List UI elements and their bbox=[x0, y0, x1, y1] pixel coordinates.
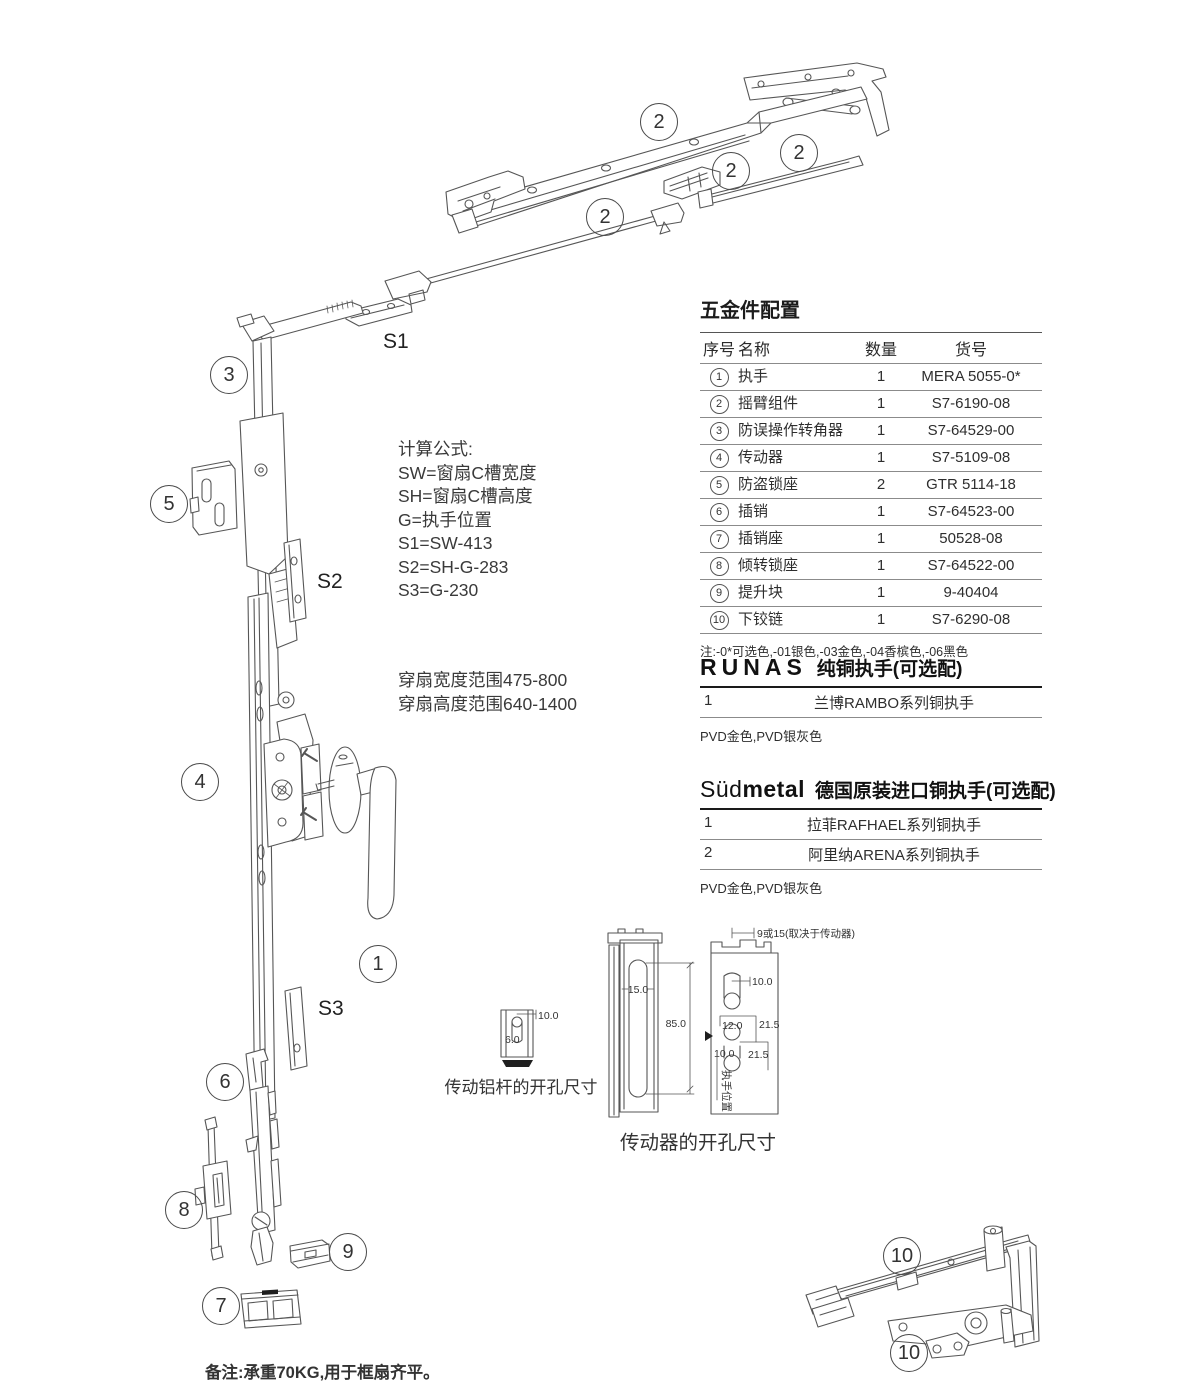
runas-title: 纯铜执手(可选配) bbox=[817, 654, 963, 681]
s3-plate bbox=[285, 987, 307, 1070]
part-callout: 8 bbox=[165, 1191, 203, 1229]
rod-dim-inner: 6.0 bbox=[505, 1034, 520, 1046]
part-code: S7-64529-00 bbox=[900, 418, 1042, 445]
part-callout: 2 bbox=[712, 152, 750, 190]
latch-keeper bbox=[241, 1290, 301, 1329]
part-code: S7-64523-00 bbox=[900, 499, 1042, 526]
part-code: MERA 5055-0* bbox=[900, 364, 1042, 391]
part-callout: 6 bbox=[206, 1063, 244, 1101]
rod-hole-caption: 传动铝杆的开孔尺寸 bbox=[440, 1073, 602, 1098]
option-row: 2 阿里纳ARENA系列铜执手 bbox=[700, 840, 1042, 870]
part-qty: 1 bbox=[862, 364, 900, 391]
runas-logo: RUNAS bbox=[700, 654, 807, 681]
hardware-config-section: 五金件配置 序号 名称 数量 货号 1 执手 1 MERA 5055 bbox=[700, 294, 1042, 660]
opening-dim-pitch2: 21.5 bbox=[748, 1049, 769, 1061]
part-callout: 2 bbox=[640, 103, 678, 141]
hardware-table: 序号 名称 数量 货号 1 执手 1 MERA 5055-0* bbox=[700, 332, 1042, 634]
table-row: 9 提升块 1 9-40404 bbox=[700, 580, 1042, 607]
part-code: 9-40404 bbox=[900, 580, 1042, 607]
runas-finish-note: PVD金色,PVD银灰色 bbox=[700, 726, 1042, 745]
row-index-badge: 10 bbox=[710, 611, 729, 630]
formula-line: SH=窗扇C槽高度 bbox=[398, 485, 537, 509]
table-row: 4 传动器 1 S7-5109-08 bbox=[700, 445, 1042, 472]
opening-dim-hole: 10.0 bbox=[752, 976, 773, 988]
opening-side-note: 执手位置 bbox=[720, 1070, 733, 1112]
col-header-code: 货号 bbox=[900, 333, 1042, 364]
part-callout: 3 bbox=[210, 356, 248, 394]
formula-line: G=执手位置 bbox=[398, 509, 537, 533]
part-qty: 1 bbox=[862, 418, 900, 445]
part-code: S7-64522-00 bbox=[900, 553, 1042, 580]
table-row: 2 摇臂组件 1 S7-6190-08 bbox=[700, 391, 1042, 418]
part-name: 传动器 bbox=[738, 445, 862, 472]
part-qty: 1 bbox=[862, 499, 900, 526]
part-callout: 9 bbox=[329, 1233, 367, 1271]
part-code: 50528-08 bbox=[900, 526, 1042, 553]
part-callout: 7 bbox=[202, 1287, 240, 1325]
part-callout: 5 bbox=[150, 485, 188, 523]
option-index: 1 bbox=[700, 692, 746, 713]
rod-hole-diagram: 10.0 6.0 bbox=[501, 1010, 559, 1067]
part-name: 插销座 bbox=[738, 526, 862, 553]
part-callout: 1 bbox=[359, 945, 397, 983]
part-qty: 1 bbox=[862, 607, 900, 634]
part-callout: 4 bbox=[181, 763, 219, 801]
bottom-hinge bbox=[806, 1226, 1039, 1358]
part-name: 倾转锁座 bbox=[738, 553, 862, 580]
part-name: 插销 bbox=[738, 499, 862, 526]
hardware-table-title: 五金件配置 bbox=[700, 294, 1042, 323]
table-row: 7 插销座 1 50528-08 bbox=[700, 526, 1042, 553]
formula-line: S1=SW-413 bbox=[398, 532, 537, 556]
footer-note: 备注:承重70KG,用于框扇齐平。 bbox=[205, 1359, 440, 1383]
drive-gear bbox=[248, 593, 323, 1122]
part-code: GTR 5114-18 bbox=[900, 472, 1042, 499]
tilt-lock-keeper bbox=[195, 1117, 231, 1260]
driver-hole-caption: 传动器的开孔尺寸 bbox=[600, 1126, 796, 1155]
part-callout: 2 bbox=[586, 198, 624, 236]
s-marker: S3 bbox=[318, 997, 344, 1021]
table-row: 5 防盗锁座 2 GTR 5114-18 bbox=[700, 472, 1042, 499]
part-name: 执手 bbox=[738, 364, 862, 391]
driver-dim-slot: 15.0 bbox=[628, 984, 649, 996]
part-callout: 10 bbox=[883, 1237, 921, 1275]
part-name: 防误操作转角器 bbox=[738, 418, 862, 445]
option-row: 1 兰博RAMBO系列铜执手 bbox=[700, 688, 1042, 718]
sudmetal-finish-note: PVD金色,PVD银灰色 bbox=[700, 878, 1042, 897]
col-header-index: 序号 bbox=[700, 333, 738, 364]
part-qty: 1 bbox=[862, 391, 900, 418]
row-index-badge: 9 bbox=[710, 584, 729, 603]
sash-range-block: 穿扇宽度范围475-800穿扇高度范围640-1400 bbox=[398, 668, 577, 716]
row-index-badge: 4 bbox=[710, 449, 729, 468]
formula-line: SW=窗扇C槽宽度 bbox=[398, 462, 537, 486]
part-name: 提升块 bbox=[738, 580, 862, 607]
option-name: 阿里纳ARENA系列铜执手 bbox=[746, 844, 1042, 865]
table-row: 6 插销 1 S7-64523-00 bbox=[700, 499, 1042, 526]
table-row: 10 下铰链 1 S7-6290-08 bbox=[700, 607, 1042, 634]
lift-block bbox=[290, 1240, 330, 1268]
opening-dim-offset: 12.0 bbox=[722, 1020, 743, 1032]
row-index-badge: 5 bbox=[710, 476, 729, 495]
table-header-row: 序号 名称 数量 货号 bbox=[700, 333, 1042, 364]
part-qty: 2 bbox=[862, 472, 900, 499]
col-header-name: 名称 bbox=[738, 333, 862, 364]
page: 10.0 6.0 15.0 85.0 9或15(取决于传动器) bbox=[0, 0, 1200, 1400]
col-header-qty: 数量 bbox=[862, 333, 900, 364]
sudmetal-title: 德国原装进口铜执手(可选配) bbox=[815, 776, 1056, 803]
runas-option-section: RUNAS 纯铜执手(可选配) 1 兰博RAMBO系列铜执手 PVD金色,PVD… bbox=[700, 654, 1042, 745]
driver-profile-diagram: 15.0 85.0 bbox=[608, 929, 694, 1117]
sash-range-line: 穿扇高度范围640-1400 bbox=[398, 692, 577, 716]
s-marker: S1 bbox=[383, 330, 409, 354]
option-index: 1 bbox=[700, 814, 746, 835]
option-name: 兰博RAMBO系列铜执手 bbox=[746, 692, 1042, 713]
driver-dim-height: 85.0 bbox=[666, 1018, 687, 1030]
formula-line: S3=G-230 bbox=[398, 579, 537, 603]
rod-dim-width: 10.0 bbox=[538, 1010, 559, 1022]
formula-block: 计算公式: SW=窗扇C槽宽度SH=窗扇C槽高度G=执手位置S1=SW-413S… bbox=[398, 438, 537, 603]
option-name: 拉菲RAFHAEL系列铜执手 bbox=[746, 814, 1042, 835]
table-row: 1 执手 1 MERA 5055-0* bbox=[700, 364, 1042, 391]
part-code: S7-5109-08 bbox=[900, 445, 1042, 472]
part-qty: 1 bbox=[862, 553, 900, 580]
part-qty: 1 bbox=[862, 526, 900, 553]
s-marker: S2 bbox=[317, 570, 343, 594]
formula-title: 计算公式: bbox=[398, 438, 537, 462]
window-handle bbox=[316, 747, 396, 919]
part-callout: 10 bbox=[890, 1334, 928, 1372]
opening-diagram: 9或15(取决于传动器) 10.0 12.0 21.5 21.5 10.0 执手… bbox=[705, 928, 855, 1114]
scissor-arm-assembly bbox=[385, 63, 889, 304]
table-row: 3 防误操作转角器 1 S7-64529-00 bbox=[700, 418, 1042, 445]
part-code: S7-6190-08 bbox=[900, 391, 1042, 418]
part-name: 摇臂组件 bbox=[738, 391, 862, 418]
row-index-badge: 7 bbox=[710, 530, 729, 549]
sash-range-line: 穿扇宽度范围475-800 bbox=[398, 668, 577, 692]
anti-theft-keeper bbox=[190, 461, 237, 535]
row-index-badge: 2 bbox=[710, 395, 729, 414]
formula-line: S2=SH-G-283 bbox=[398, 556, 537, 580]
part-name: 防盗锁座 bbox=[738, 472, 862, 499]
option-index: 2 bbox=[700, 844, 746, 865]
part-callout: 2 bbox=[780, 134, 818, 172]
opening-dim-top: 9或15(取决于传动器) bbox=[757, 928, 855, 940]
sudmetal-option-section: Südmetal 德国原装进口铜执手(可选配) 1 拉菲RAFHAEL系列铜执手… bbox=[700, 776, 1042, 897]
part-qty: 1 bbox=[862, 580, 900, 607]
opening-dim-pitch1: 21.5 bbox=[759, 1019, 780, 1031]
part-qty: 1 bbox=[862, 445, 900, 472]
row-index-badge: 8 bbox=[710, 557, 729, 576]
option-row: 1 拉菲RAFHAEL系列铜执手 bbox=[700, 810, 1042, 840]
row-index-badge: 6 bbox=[710, 503, 729, 522]
sudmetal-logo: Südmetal bbox=[700, 776, 805, 803]
row-index-badge: 1 bbox=[710, 368, 729, 387]
table-row: 8 倾转锁座 1 S7-64522-00 bbox=[700, 553, 1042, 580]
row-index-badge: 3 bbox=[710, 422, 729, 441]
part-name: 下铰链 bbox=[738, 607, 862, 634]
part-code: S7-6290-08 bbox=[900, 607, 1042, 634]
